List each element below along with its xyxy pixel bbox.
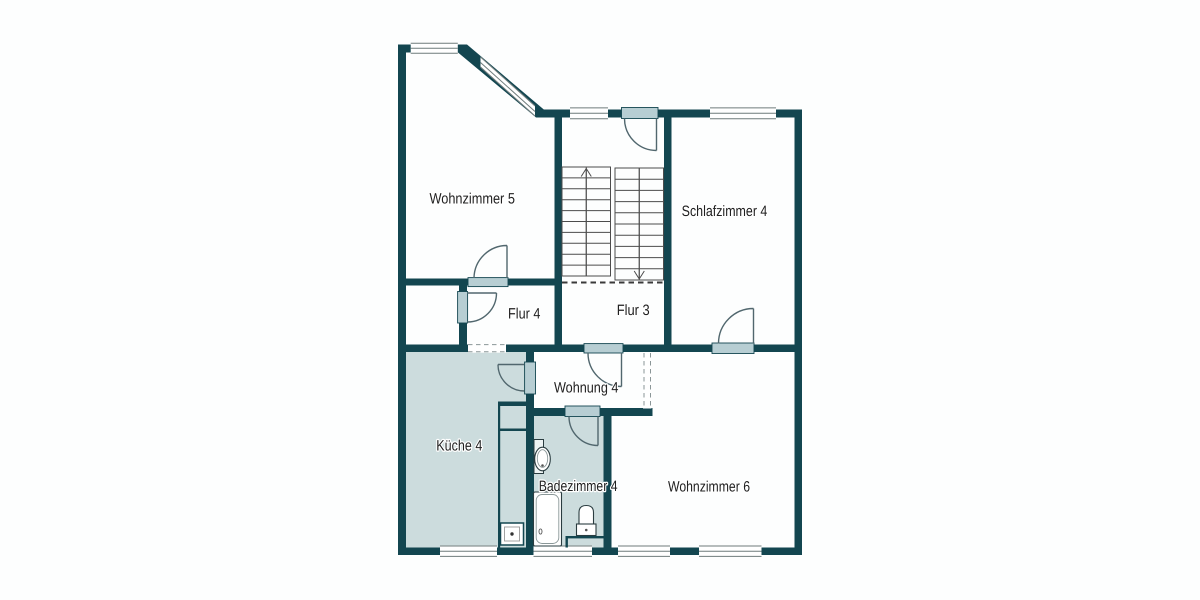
svg-text:Flur 3: Flur 3 (617, 302, 650, 319)
svg-text:Wohnzimmer 6: Wohnzimmer 6 (668, 479, 750, 496)
svg-text:Flur 4: Flur 4 (508, 306, 540, 323)
svg-text:Schlafzimmer 4: Schlafzimmer 4 (682, 203, 768, 220)
svg-text:Wohnzimmer 5: Wohnzimmer 5 (429, 191, 515, 208)
svg-text:Badezimmer 4: Badezimmer 4 (539, 478, 618, 495)
svg-text:Wohnung 4: Wohnung 4 (554, 380, 619, 397)
svg-text:Küche 4: Küche 4 (436, 438, 482, 455)
